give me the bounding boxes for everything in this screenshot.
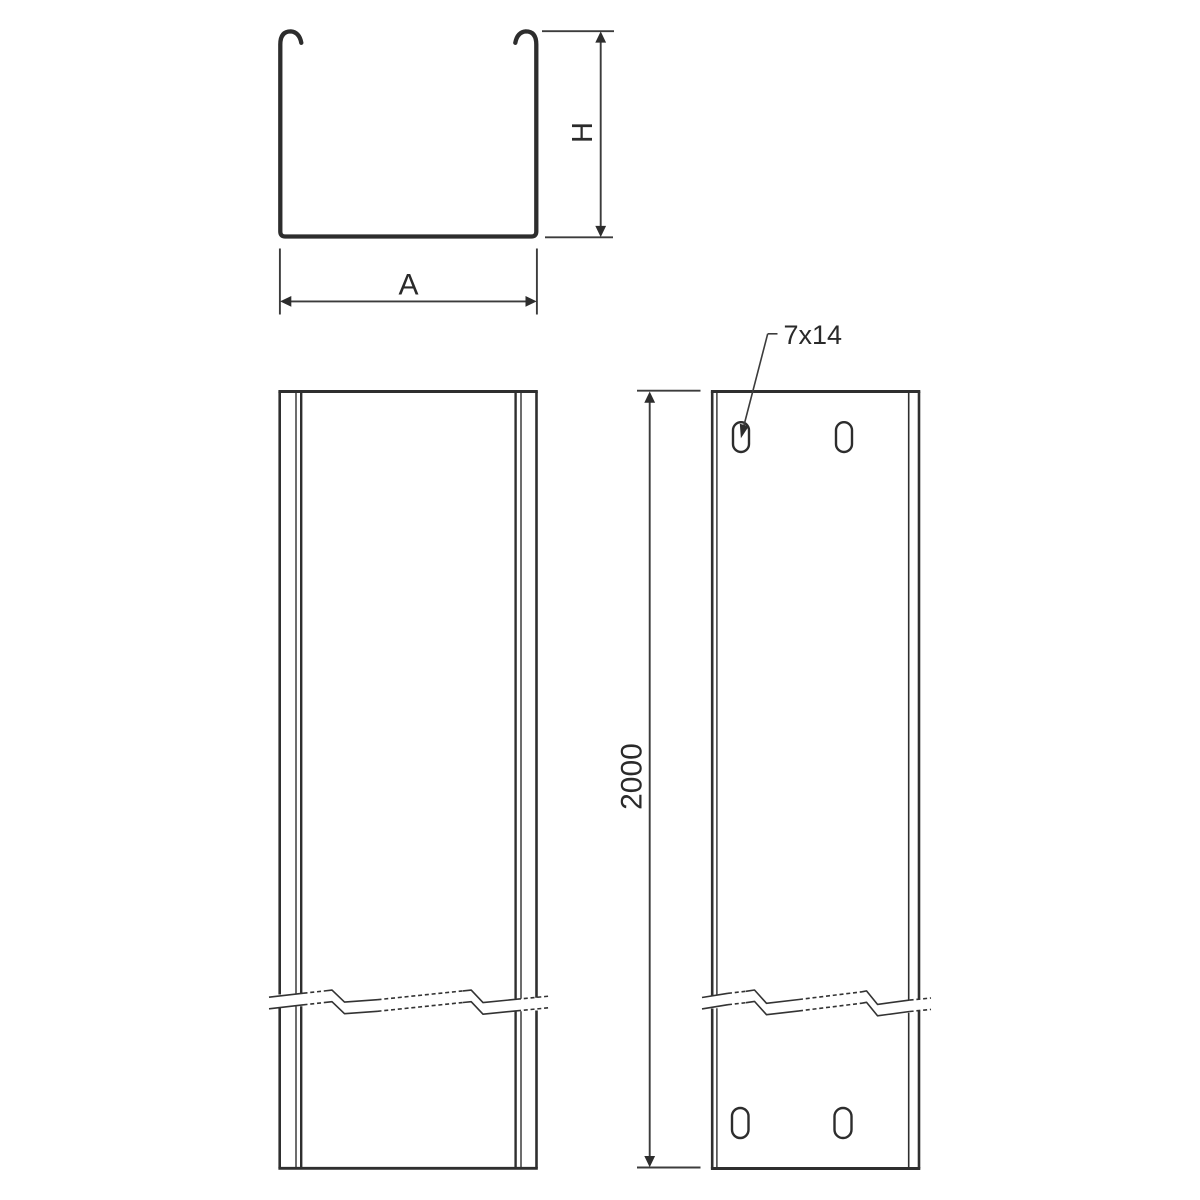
svg-text:A: A [398,269,418,302]
svg-text:7x14: 7x14 [784,320,843,350]
svg-text:H: H [567,122,599,143]
svg-text:2000: 2000 [615,743,648,810]
